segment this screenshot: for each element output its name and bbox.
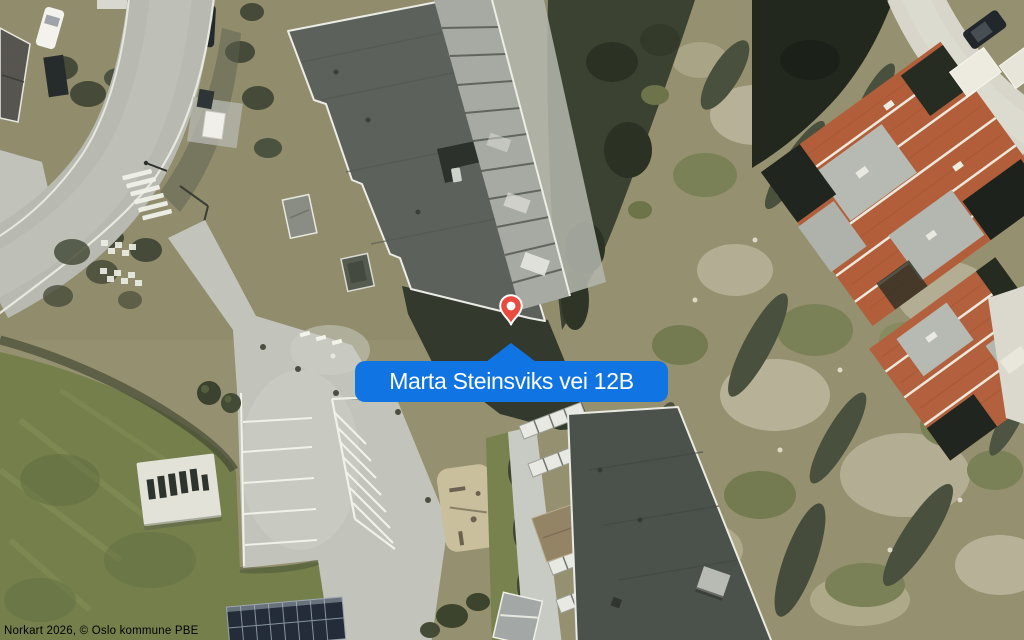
trailer: [202, 111, 225, 140]
address-callout[interactable]: Marta Steinsviks vei 12B: [355, 361, 668, 402]
address-label: Marta Steinsviks vei 12B: [389, 368, 634, 395]
pin-dot: [507, 302, 516, 311]
bike-rack-pad: [136, 453, 222, 530]
map-viewport[interactable]: Marta Steinsviks vei 12B Norkart 2026, ©…: [0, 0, 1024, 640]
map-attribution: Norkart 2026, © Oslo kommune PBE: [4, 625, 198, 637]
location-pin-icon[interactable]: [498, 294, 524, 326]
